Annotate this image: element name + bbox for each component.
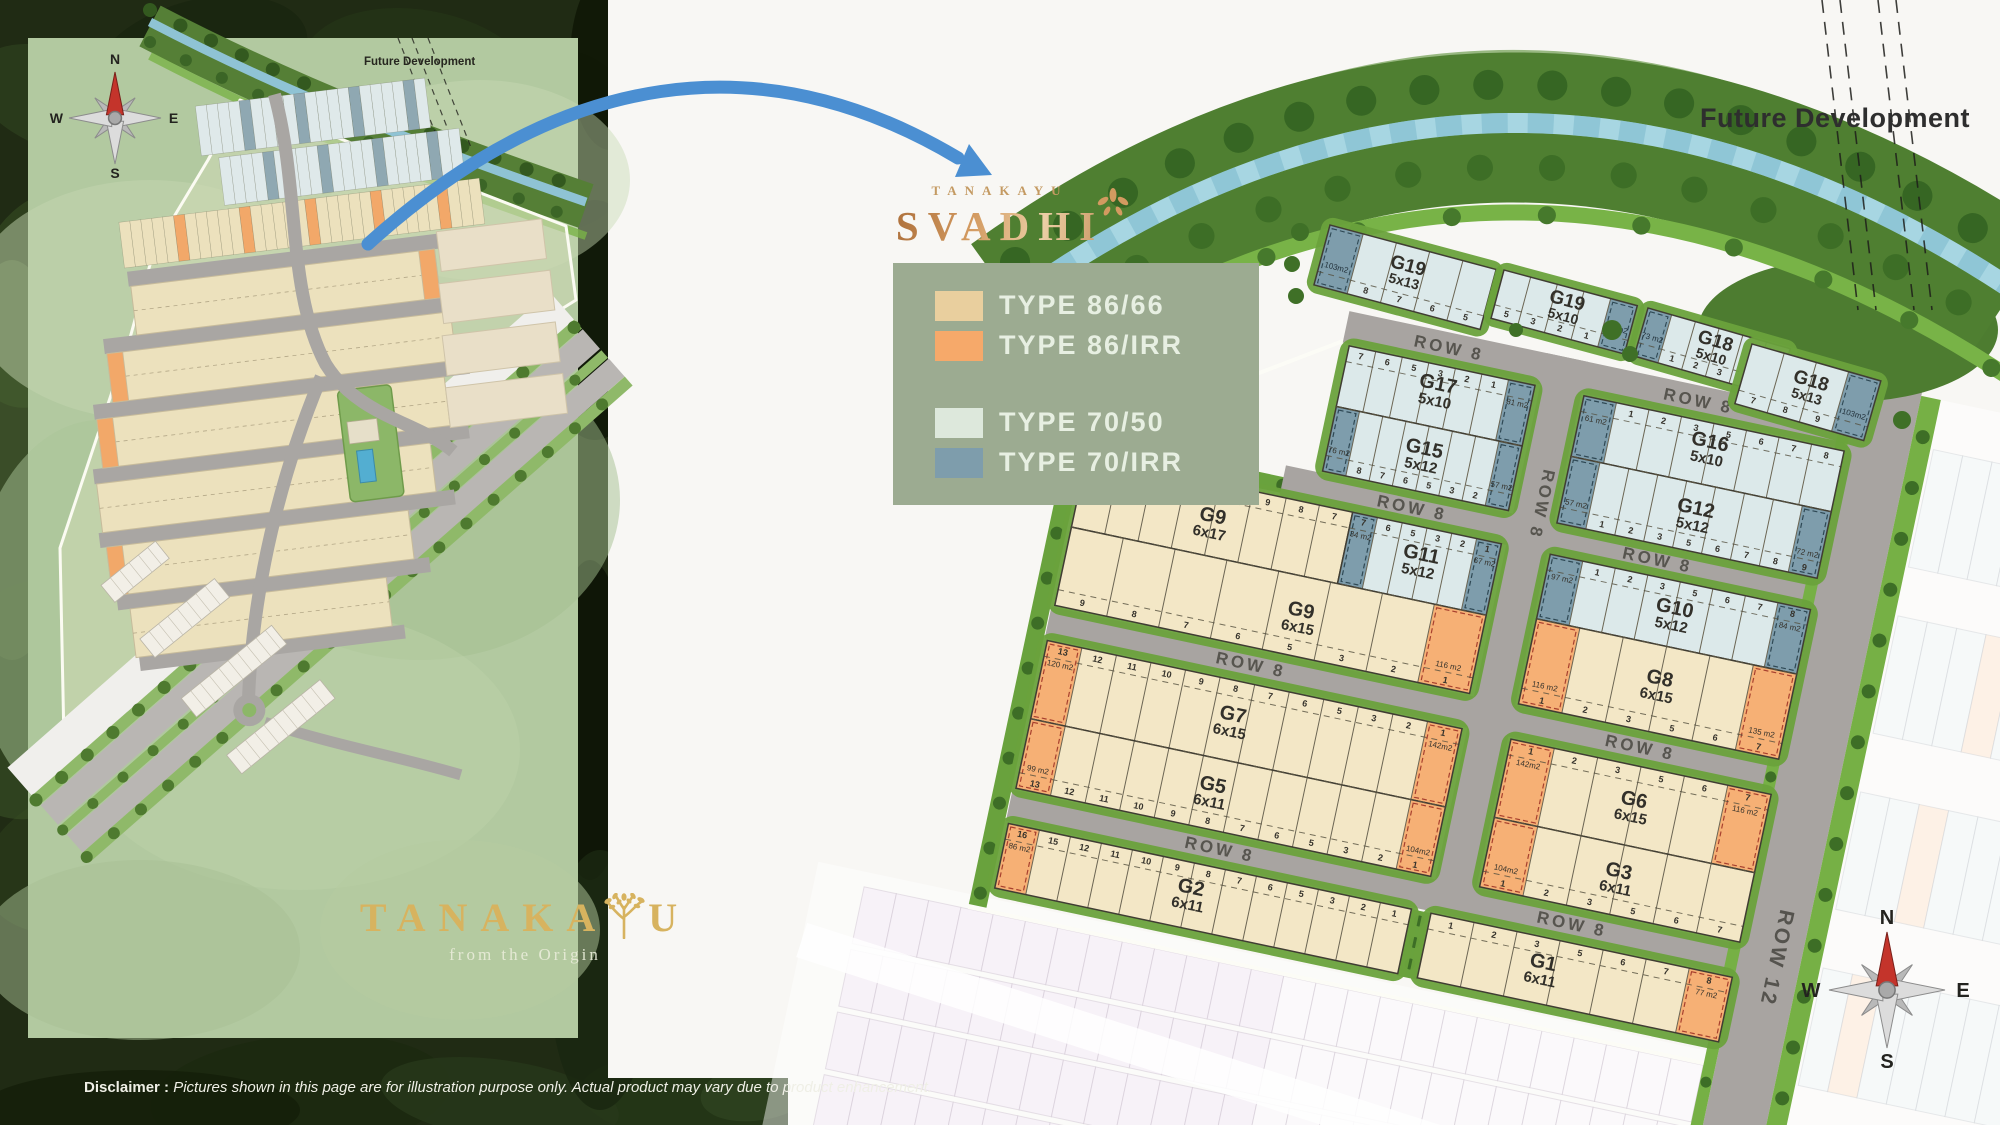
svg-text:15: 15 xyxy=(1047,835,1059,847)
legend-label: TYPE 70/50 xyxy=(999,407,1165,438)
svg-text:S: S xyxy=(110,165,119,181)
svg-text:E: E xyxy=(169,110,178,126)
future-development-label: Future Development xyxy=(1700,103,1970,134)
svg-text:12: 12 xyxy=(1092,653,1104,665)
svg-text:13: 13 xyxy=(1057,646,1069,658)
svg-text:10: 10 xyxy=(1140,855,1152,867)
tanakayu-wordmark: TANAKA U xyxy=(300,893,750,941)
type-86-66-swatch xyxy=(935,291,983,321)
type-70-50-swatch xyxy=(935,408,983,438)
svg-text:16: 16 xyxy=(1016,829,1028,841)
unit-type-legend: TYPE 86/66 TYPE 86/IRR TYPE 70/50 TYPE 7… xyxy=(893,263,1259,505)
svg-text:11: 11 xyxy=(1110,848,1121,860)
svg-text:11: 11 xyxy=(1098,793,1109,805)
disclaimer-prefix: Disclaimer : xyxy=(84,1079,169,1096)
svg-text:W: W xyxy=(50,110,64,126)
svg-text:10: 10 xyxy=(1161,668,1173,680)
tanakayu-text-left: TANAKA xyxy=(360,894,608,941)
svadhi-logo: TANAKAYU SVADHI xyxy=(862,183,1138,250)
legend-label: TYPE 70/IRR xyxy=(999,447,1183,478)
svg-text:W: W xyxy=(1802,980,1821,1002)
type-70-irr-swatch xyxy=(935,448,983,478)
leaf-sprig-icon xyxy=(1096,188,1130,218)
legend-row: TYPE 86/IRR xyxy=(935,329,1259,363)
svg-text:E: E xyxy=(1956,980,1969,1002)
disclaimer: Disclaimer : Pictures shown in this page… xyxy=(84,1079,1584,1096)
pool xyxy=(357,449,377,483)
legend-row: TYPE 70/IRR xyxy=(935,446,1259,480)
future-development-label-small: Future Development xyxy=(364,56,475,68)
brochure-page: NSWEROW 8ROW 8ROW 8ROW 8ROW 8ROW 8ROW 8R… xyxy=(0,0,2000,1125)
type-86-irr-swatch xyxy=(935,331,983,361)
svg-text:12: 12 xyxy=(1064,786,1076,798)
legend-row: TYPE 86/66 xyxy=(935,289,1259,323)
svg-text:12: 12 xyxy=(1078,842,1090,854)
legend-row: TYPE 70/50 xyxy=(935,406,1259,440)
legend-label: TYPE 86/66 xyxy=(999,290,1165,321)
disclaimer-text: Pictures shown in this page are for illu… xyxy=(169,1079,932,1096)
tree-icon xyxy=(602,893,646,939)
legend-label: TYPE 86/IRR xyxy=(999,330,1183,361)
masterplan-card: NSWE xyxy=(0,10,630,1040)
svg-text:N: N xyxy=(110,51,120,67)
svadhi-name-text: SVADHI xyxy=(862,202,1138,250)
tanakayu-tagline: from the Origin xyxy=(300,945,750,965)
svg-text:11: 11 xyxy=(1126,661,1137,673)
svg-text:S: S xyxy=(1880,1051,1893,1073)
svg-text:N: N xyxy=(1880,907,1894,929)
svg-text:10: 10 xyxy=(1133,800,1145,812)
tanakayu-text-right: U xyxy=(648,894,690,941)
svg-text:13: 13 xyxy=(1029,778,1041,790)
tanakayu-logo: TANAKA U from the Origin xyxy=(300,893,750,965)
